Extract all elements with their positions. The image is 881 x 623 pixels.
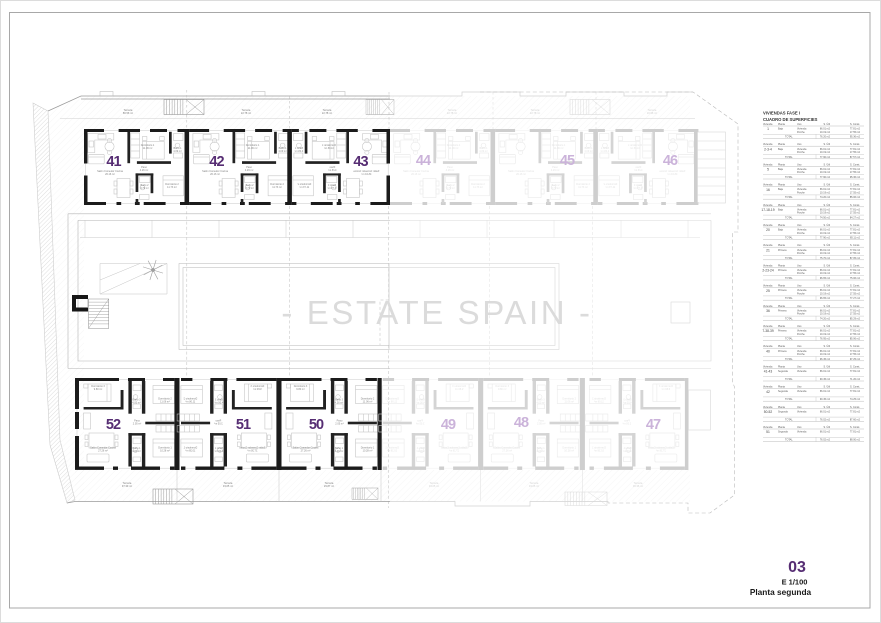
svg-text:36: 36 [766, 309, 770, 313]
svg-text:S. Const.: S. Const. [850, 163, 860, 166]
svg-text:33.05 m²: 33.05 m² [529, 484, 539, 488]
svg-text:10.19 m2: 10.19 m2 [820, 171, 831, 174]
svg-text:29.87 m²: 29.87 m² [324, 484, 334, 488]
svg-text:Uso: Uso [797, 285, 802, 288]
svg-text:66.01 m2: 66.01 m2 [820, 431, 831, 434]
svg-text:TOTAL: TOTAL [785, 418, 793, 421]
svg-text:10.19 m2: 10.19 m2 [820, 191, 831, 194]
svg-text:40: 40 [766, 349, 770, 353]
svg-text:10.19 m2: 10.19 m2 [820, 252, 831, 255]
svg-text:22.78 m²: 22.78 m² [447, 111, 457, 115]
svg-text:Vivienda: Vivienda [763, 386, 773, 389]
svg-text:Vivienda: Vivienda [763, 285, 773, 288]
svg-text:47: 47 [646, 417, 661, 433]
svg-text:96.65 m2: 96.65 m2 [820, 277, 831, 280]
svg-text:10.19 m2: 10.19 m2 [820, 131, 831, 134]
svg-text:95.36 m2: 95.36 m2 [850, 136, 861, 139]
svg-text:75.06 m2: 75.06 m2 [850, 277, 861, 280]
svg-text:36.36 m²: 36.36 m² [633, 484, 643, 488]
svg-text:7-38-39: 7-38-39 [762, 329, 774, 333]
svg-text:S. Const.: S. Const. [850, 426, 860, 429]
svg-text:74.20 m2: 74.20 m2 [820, 317, 831, 320]
svg-text:85.29 m2: 85.29 m2 [850, 317, 861, 320]
svg-text:17.55 m2: 17.55 m2 [850, 151, 861, 154]
svg-text:TOTAL: TOTAL [785, 358, 793, 361]
svg-text:Primera: Primera [778, 269, 787, 272]
svg-text:Planta segunda: Planta segunda [750, 587, 812, 597]
svg-text:CUADRO DE SUPERFICIES: CUADRO DE SUPERFICIES [763, 117, 818, 122]
svg-text:Primera: Primera [778, 289, 787, 292]
svg-text:75.70 m2: 75.70 m2 [820, 257, 831, 260]
svg-text:44: 44 [416, 153, 431, 169]
svg-text:Vivienda: Vivienda [797, 410, 807, 413]
svg-text:S. Const.: S. Const. [850, 184, 860, 187]
svg-text:- ESTATE SPAIN -: - ESTATE SPAIN - [281, 294, 592, 331]
svg-text:Baja: Baja [778, 188, 784, 191]
svg-text:10.19 m2: 10.19 m2 [820, 353, 831, 356]
svg-text:86.56 m²: 86.56 m² [123, 111, 133, 115]
svg-text:Planta: Planta [778, 325, 786, 328]
svg-text:TOTAL: TOTAL [785, 136, 793, 139]
svg-text:S. Const.: S. Const. [850, 123, 860, 126]
svg-text:Porche: Porche [797, 292, 805, 295]
svg-text:S. Const.: S. Const. [850, 305, 860, 308]
svg-text:Porche: Porche [797, 232, 805, 235]
svg-text:Vivienda: Vivienda [763, 184, 773, 187]
svg-text:Planta: Planta [778, 305, 786, 308]
svg-text:Porche: Porche [797, 171, 805, 174]
svg-text:Planta: Planta [778, 163, 786, 166]
svg-text:S. Útil: S. Útil [823, 204, 830, 207]
svg-text:10.19 m2: 10.19 m2 [820, 292, 831, 295]
svg-text:48: 48 [514, 415, 529, 431]
svg-text:87.05 m2: 87.05 m2 [850, 257, 861, 260]
svg-text:66.01 m2: 66.01 m2 [820, 390, 831, 393]
svg-text:Uso: Uso [797, 345, 802, 348]
svg-text:TOTAL: TOTAL [785, 216, 793, 219]
svg-text:33.05 m²: 33.05 m² [429, 484, 439, 488]
svg-text:16: 16 [766, 188, 770, 192]
svg-text:Uso: Uso [797, 163, 802, 166]
svg-text:51: 51 [236, 417, 251, 433]
svg-text:1: 1 [767, 127, 769, 131]
svg-text:10.19 m2: 10.19 m2 [820, 212, 831, 215]
svg-text:Vivienda: Vivienda [763, 163, 773, 166]
svg-text:Vivienda: Vivienda [797, 390, 807, 393]
svg-text:90.45 m2: 90.45 m2 [820, 378, 831, 381]
svg-text:77.90 m2: 77.90 m2 [820, 176, 831, 179]
svg-text:33.05 m²: 33.05 m² [223, 484, 233, 488]
svg-text:Primera: Primera [778, 330, 787, 333]
svg-text:49: 49 [441, 417, 456, 433]
svg-text:S. Const.: S. Const. [850, 285, 860, 288]
svg-text:Planta: Planta [778, 224, 786, 227]
svg-text:Planta: Planta [778, 365, 786, 368]
svg-text:Porche: Porche [797, 212, 805, 215]
svg-text:Vivienda: Vivienda [763, 143, 773, 146]
svg-text:Planta: Planta [778, 184, 786, 187]
svg-text:17.55 m2: 17.55 m2 [850, 292, 861, 295]
svg-text:2-23-24: 2-23-24 [762, 269, 774, 273]
svg-text:Planta: Planta [778, 143, 786, 146]
svg-text:Uso: Uso [797, 224, 802, 227]
svg-text:S. Const.: S. Const. [850, 143, 860, 146]
svg-text:77.81 m2: 77.81 m2 [850, 370, 861, 373]
svg-text:S. Útil: S. Útil [823, 224, 830, 227]
svg-text:45: 45 [560, 153, 575, 169]
svg-text:TOTAL: TOTAL [785, 317, 793, 320]
svg-text:S. Const.: S. Const. [850, 325, 860, 328]
svg-text:76.20 m2: 76.20 m2 [820, 136, 831, 139]
svg-text:Uso: Uso [797, 143, 802, 146]
svg-text:S. Const.: S. Const. [850, 406, 860, 409]
svg-text:S. Útil: S. Útil [823, 345, 830, 348]
svg-text:Baja: Baja [778, 128, 784, 131]
svg-text:E 1/100: E 1/100 [782, 578, 808, 587]
svg-text:Porche: Porche [797, 313, 805, 316]
svg-text:TOTAL: TOTAL [785, 257, 793, 260]
svg-text:Planta: Planta [778, 264, 786, 267]
svg-text:74.50 m2: 74.50 m2 [820, 216, 831, 219]
svg-text:52: 52 [106, 417, 121, 433]
svg-text:84.27 m2: 84.27 m2 [850, 216, 861, 219]
svg-text:Primera: Primera [778, 350, 787, 353]
svg-text:Porche: Porche [797, 252, 805, 255]
svg-text:Uso: Uso [797, 244, 802, 247]
svg-text:Vivienda: Vivienda [763, 406, 773, 409]
svg-text:Vivienda: Vivienda [797, 431, 807, 434]
svg-text:Porche: Porche [797, 353, 805, 356]
svg-text:S. Útil: S. Útil [823, 365, 830, 368]
svg-text:66.01 m2: 66.01 m2 [820, 410, 831, 413]
svg-text:85.11 m2: 85.11 m2 [850, 237, 861, 240]
svg-text:71.20 m2: 71.20 m2 [850, 378, 861, 381]
svg-text:Uso: Uso [797, 406, 802, 409]
svg-text:87.57 m2: 87.57 m2 [850, 156, 861, 159]
svg-text:66.01 m2: 66.01 m2 [820, 370, 831, 373]
svg-text:Planta: Planta [778, 386, 786, 389]
svg-text:S. Útil: S. Útil [823, 426, 830, 429]
svg-text:17.55 m2: 17.55 m2 [850, 212, 861, 215]
svg-text:TOTAL: TOTAL [785, 398, 793, 401]
svg-text:50: 50 [309, 417, 324, 433]
svg-text:46: 46 [663, 153, 678, 169]
svg-text:S. Const.: S. Const. [850, 386, 860, 389]
svg-text:17.55 m2: 17.55 m2 [850, 353, 861, 356]
svg-text:S. Útil: S. Útil [823, 386, 830, 389]
svg-text:76.95 m2: 76.95 m2 [820, 338, 831, 341]
svg-text:Uso: Uso [797, 426, 802, 429]
svg-text:VIVIENDAS FASE I: VIVIENDAS FASE I [763, 111, 800, 116]
svg-text:Uso: Uso [797, 325, 802, 328]
svg-text:10.19 m2: 10.19 m2 [820, 333, 831, 336]
svg-text:S. Const.: S. Const. [850, 244, 860, 247]
svg-text:Uso: Uso [797, 184, 802, 187]
svg-text:22.78 m²: 22.78 m² [322, 111, 332, 115]
svg-text:Planta: Planta [778, 204, 786, 207]
svg-text:17-18-19: 17-18-19 [761, 208, 774, 212]
svg-text:10.19 m2: 10.19 m2 [820, 313, 831, 316]
svg-text:Uso: Uso [797, 305, 802, 308]
svg-text:85.06 m2: 85.06 m2 [850, 338, 861, 341]
svg-text:Porche: Porche [797, 191, 805, 194]
svg-text:S. Útil: S. Útil [823, 163, 830, 166]
svg-text:43: 43 [353, 154, 368, 170]
svg-text:Vivienda: Vivienda [763, 264, 773, 267]
svg-text:Baja: Baja [778, 148, 784, 151]
svg-text:Planta: Planta [778, 345, 786, 348]
svg-text:Planta: Planta [778, 123, 786, 126]
svg-text:87.60 m2: 87.60 m2 [850, 418, 861, 421]
svg-text:S. Const.: S. Const. [850, 264, 860, 267]
svg-text:S. Útil: S. Útil [823, 285, 830, 288]
svg-text:10.19 m2: 10.19 m2 [820, 232, 831, 235]
svg-text:S. Const.: S. Const. [850, 365, 860, 368]
svg-text:S. Útil: S. Útil [823, 244, 830, 247]
svg-text:Uso: Uso [797, 264, 802, 267]
svg-text:Uso: Uso [797, 123, 802, 126]
svg-text:25: 25 [766, 289, 770, 293]
svg-text:88.00 m2: 88.00 m2 [850, 439, 861, 442]
svg-text:Segunda: Segunda [778, 410, 788, 413]
svg-text:03: 03 [788, 559, 806, 576]
svg-text:Uso: Uso [797, 386, 802, 389]
svg-text:2-3-4: 2-3-4 [764, 147, 772, 151]
svg-text:Porche: Porche [797, 272, 805, 275]
svg-text:42: 42 [209, 154, 224, 170]
svg-text:42: 42 [766, 390, 770, 394]
svg-text:S. Const.: S. Const. [850, 224, 860, 227]
svg-text:20: 20 [766, 228, 770, 232]
svg-text:97.25 m2: 97.25 m2 [850, 358, 861, 361]
svg-text:74.20 m2: 74.20 m2 [820, 196, 831, 199]
svg-text:TOTAL: TOTAL [785, 338, 793, 341]
svg-text:Primera: Primera [778, 309, 787, 312]
svg-text:17.55 m2: 17.55 m2 [850, 232, 861, 235]
svg-text:17.55 m2: 17.55 m2 [850, 191, 861, 194]
svg-text:77.27 m2: 77.27 m2 [850, 297, 861, 300]
svg-text:96.65 m2: 96.65 m2 [820, 297, 831, 300]
svg-text:10.19 m2: 10.19 m2 [820, 151, 831, 154]
svg-text:Porche: Porche [797, 333, 805, 336]
svg-text:Vivienda: Vivienda [763, 224, 773, 227]
svg-text:TOTAL: TOTAL [785, 277, 793, 280]
svg-text:51: 51 [766, 430, 770, 434]
svg-text:76.02 m2: 76.02 m2 [820, 439, 831, 442]
svg-text:96.45 m2: 96.45 m2 [820, 358, 831, 361]
svg-text:S. Útil: S. Útil [823, 406, 830, 409]
svg-text:Planta: Planta [778, 406, 786, 409]
svg-text:Vivienda: Vivienda [763, 123, 773, 126]
svg-text:Segunda: Segunda [778, 390, 788, 393]
svg-text:74.25 m2: 74.25 m2 [850, 398, 861, 401]
svg-text:41-43: 41-43 [764, 370, 773, 374]
svg-text:77.81 m2: 77.81 m2 [850, 410, 861, 413]
svg-text:85.06 m2: 85.06 m2 [850, 196, 861, 199]
svg-text:Uso: Uso [797, 365, 802, 368]
svg-text:Segunda: Segunda [778, 370, 788, 373]
svg-text:5: 5 [767, 168, 769, 172]
svg-text:S. Const.: S. Const. [850, 345, 860, 348]
svg-text:10.19 m2: 10.19 m2 [820, 272, 831, 275]
svg-text:Uso: Uso [797, 204, 802, 207]
svg-text:17.55 m2: 17.55 m2 [850, 272, 861, 275]
svg-text:S. Útil: S. Útil [823, 123, 830, 126]
svg-text:17.55 m2: 17.55 m2 [850, 252, 861, 255]
svg-text:90.45 m2: 90.45 m2 [820, 398, 831, 401]
svg-text:S. Útil: S. Útil [823, 143, 830, 146]
svg-text:S. Útil: S. Útil [823, 325, 830, 328]
svg-text:21: 21 [766, 248, 770, 252]
svg-text:20.98 m²: 20.98 m² [647, 111, 657, 115]
svg-text:Vivienda: Vivienda [763, 365, 773, 368]
svg-text:Vivienda: Vivienda [763, 244, 773, 247]
svg-text:Baja: Baja [778, 168, 784, 171]
svg-text:S. Const.: S. Const. [850, 204, 860, 207]
svg-text:Planta: Planta [778, 426, 786, 429]
svg-text:77.90 m2: 77.90 m2 [820, 156, 831, 159]
svg-text:Segunda: Segunda [778, 431, 788, 434]
svg-text:95.36 m2: 95.36 m2 [850, 176, 861, 179]
svg-text:77.81 m2: 77.81 m2 [850, 390, 861, 393]
svg-text:50-52: 50-52 [764, 410, 773, 414]
svg-text:Planta: Planta [778, 285, 786, 288]
svg-text:17.55 m2: 17.55 m2 [850, 313, 861, 316]
svg-text:Vivienda: Vivienda [763, 204, 773, 207]
svg-text:22.78 m²: 22.78 m² [241, 111, 251, 115]
svg-text:Baja: Baja [778, 208, 784, 211]
svg-text:TOTAL: TOTAL [785, 156, 793, 159]
svg-text:Porche: Porche [797, 151, 805, 154]
svg-text:17.55 m2: 17.55 m2 [850, 131, 861, 134]
svg-text:17.55 m2: 17.55 m2 [850, 171, 861, 174]
svg-text:Vivienda: Vivienda [763, 325, 773, 328]
svg-text:Vivienda: Vivienda [763, 426, 773, 429]
svg-text:TOTAL: TOTAL [785, 439, 793, 442]
svg-text:77.81 m2: 77.81 m2 [850, 431, 861, 434]
svg-text:TOTAL: TOTAL [785, 237, 793, 240]
svg-text:TOTAL: TOTAL [785, 378, 793, 381]
svg-text:Primera: Primera [778, 249, 787, 252]
svg-text:97.39 m²: 97.39 m² [122, 484, 132, 488]
svg-text:TOTAL: TOTAL [785, 196, 793, 199]
svg-text:76.02 m2: 76.02 m2 [820, 418, 831, 421]
svg-text:Vivienda: Vivienda [763, 345, 773, 348]
svg-text:S. Útil: S. Útil [823, 305, 830, 308]
svg-text:TOTAL: TOTAL [785, 176, 793, 179]
svg-text:77.90 m2: 77.90 m2 [820, 237, 831, 240]
svg-text:41: 41 [106, 154, 121, 170]
svg-text:Baja: Baja [778, 229, 784, 232]
svg-text:Planta: Planta [778, 244, 786, 247]
svg-text:Porche: Porche [797, 131, 805, 134]
svg-text:S. Útil: S. Útil [823, 264, 830, 267]
svg-text:17.55 m2: 17.55 m2 [850, 333, 861, 336]
svg-text:22.78 m²: 22.78 m² [530, 111, 540, 115]
svg-text:Vivienda: Vivienda [797, 370, 807, 373]
svg-text:Vivienda: Vivienda [763, 305, 773, 308]
svg-text:TOTAL: TOTAL [785, 297, 793, 300]
svg-text:S. Útil: S. Útil [823, 184, 830, 187]
